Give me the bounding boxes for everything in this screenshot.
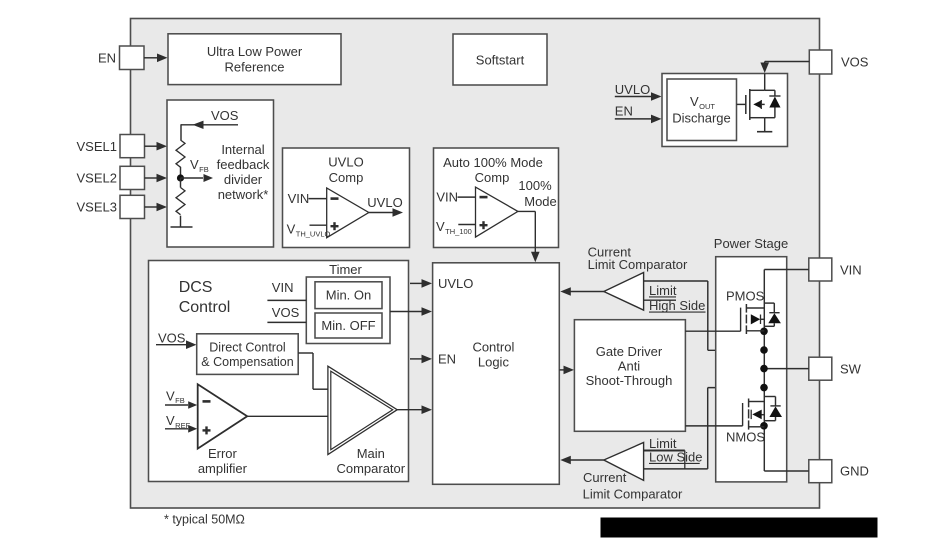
svg-text:VOS: VOS <box>158 330 186 345</box>
svg-text:TH_UVLO: TH_UVLO <box>296 229 331 238</box>
svg-text:Min. OFF: Min. OFF <box>321 318 375 333</box>
svg-text:UVLO: UVLO <box>367 195 402 210</box>
svg-text:VIN: VIN <box>288 191 310 206</box>
svg-text:network*: network* <box>218 187 269 202</box>
svg-text:UVLO: UVLO <box>328 155 363 170</box>
svg-text:Mode: Mode <box>524 194 557 209</box>
svg-text:EN: EN <box>438 351 456 366</box>
svg-text:Anti: Anti <box>618 359 641 374</box>
svg-text:NMOS: NMOS <box>726 430 765 445</box>
svg-text:EN: EN <box>98 50 116 65</box>
svg-text:V: V <box>166 388 175 403</box>
svg-text:Internal: Internal <box>221 142 264 157</box>
svg-text:Control: Control <box>472 340 514 355</box>
svg-text:Min. On: Min. On <box>326 288 372 303</box>
svg-text:FB: FB <box>199 165 209 174</box>
svg-text:divider: divider <box>224 172 263 187</box>
svg-text:DCS: DCS <box>179 279 213 296</box>
svg-text:Main: Main <box>357 446 385 461</box>
svg-text:Auto 100% Mode: Auto 100% Mode <box>443 155 543 170</box>
svg-text:Reference: Reference <box>225 60 285 75</box>
svg-text:Control: Control <box>179 299 231 316</box>
svg-text:Limit: Limit <box>649 283 677 298</box>
svg-text:V: V <box>166 413 175 428</box>
svg-text:UVLO: UVLO <box>438 276 473 291</box>
svg-text:Comp: Comp <box>329 170 364 185</box>
svg-text:100%: 100% <box>518 178 552 193</box>
svg-text:Current: Current <box>583 470 627 485</box>
svg-text:Low Side: Low Side <box>649 450 702 465</box>
svg-text:V: V <box>190 157 199 172</box>
svg-text:Limit Comparator: Limit Comparator <box>583 486 683 501</box>
svg-text:VOS: VOS <box>272 305 300 320</box>
svg-text:EN: EN <box>615 104 633 119</box>
svg-text:Direct Control: Direct Control <box>209 340 285 354</box>
svg-text:Power Stage: Power Stage <box>714 236 788 251</box>
svg-text:SW: SW <box>840 362 862 377</box>
svg-text:PMOS: PMOS <box>726 289 765 304</box>
svg-text:High Side: High Side <box>649 298 705 313</box>
svg-text:VOS: VOS <box>841 55 869 70</box>
svg-text:V: V <box>436 219 445 234</box>
svg-text:VIN: VIN <box>436 190 458 205</box>
svg-text:Logic: Logic <box>478 355 510 370</box>
svg-text:V: V <box>690 94 699 109</box>
svg-text:VSEL1: VSEL1 <box>77 139 117 154</box>
svg-text:UVLO: UVLO <box>615 82 650 97</box>
svg-text:Gate Driver: Gate Driver <box>596 344 663 359</box>
svg-text:VOS: VOS <box>211 108 239 123</box>
svg-text:VIN: VIN <box>840 262 862 277</box>
svg-text:GND: GND <box>840 464 869 479</box>
svg-text:Discharge: Discharge <box>672 110 731 125</box>
svg-text:Timer: Timer <box>329 262 362 277</box>
svg-text:feedback: feedback <box>217 157 270 172</box>
svg-text:* typical 50MΩ: * typical 50MΩ <box>164 513 245 527</box>
svg-text:VIN: VIN <box>272 280 294 295</box>
svg-text:Softstart: Softstart <box>476 52 525 67</box>
svg-text:Error: Error <box>208 446 238 461</box>
svg-text:VSEL3: VSEL3 <box>77 200 117 215</box>
svg-text:& Compensation: & Compensation <box>201 355 293 369</box>
svg-text:Shoot-Through: Shoot-Through <box>586 373 673 388</box>
svg-text:VSEL2: VSEL2 <box>77 171 117 186</box>
svg-text:Comparator: Comparator <box>336 461 405 476</box>
svg-text:Limit Comparator: Limit Comparator <box>588 257 688 272</box>
svg-text:V: V <box>287 222 296 237</box>
svg-text:TH_100: TH_100 <box>445 227 472 236</box>
svg-text:Ultra Low Power: Ultra Low Power <box>207 44 303 59</box>
svg-text:Comp: Comp <box>475 170 510 185</box>
svg-text:amplifier: amplifier <box>198 461 248 476</box>
svg-text:FB: FB <box>175 396 185 405</box>
